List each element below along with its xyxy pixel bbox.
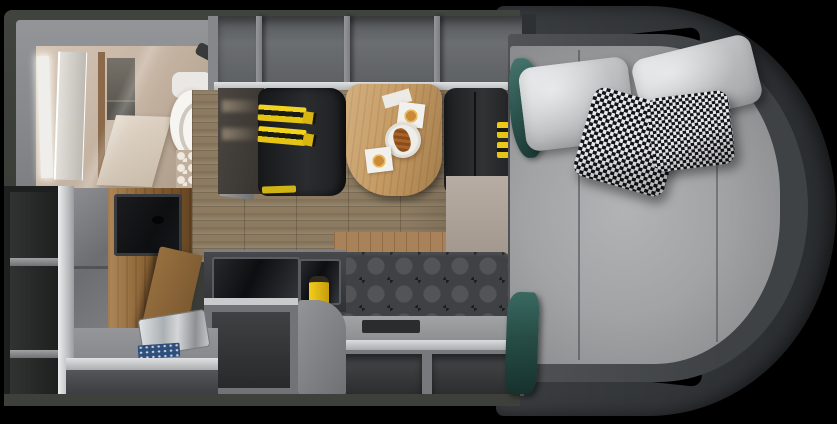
coffee-cup [370, 152, 388, 170]
counter-front-edge [66, 358, 218, 370]
mirror-panel [54, 52, 87, 181]
reflection-streak [222, 128, 262, 140]
reflection-streak [222, 100, 262, 112]
tv-screen [114, 194, 182, 256]
tv-camera-dot [152, 216, 164, 224]
bathroom-shelf-niche [107, 58, 135, 120]
shelf-divider [434, 16, 440, 84]
fridge-door-split [74, 266, 108, 269]
shelf-end-left [208, 16, 218, 92]
shelf-divider [344, 16, 350, 84]
window-panel [446, 176, 512, 258]
sofa-backrest [334, 252, 510, 318]
seatbelt-buckle [302, 111, 317, 125]
shelf-opening [10, 192, 56, 258]
van-bottom-wall [4, 394, 520, 406]
sofa-tray-inset [362, 320, 420, 333]
shelf-opening [10, 266, 56, 350]
storage-cubby [334, 354, 422, 396]
shelf-edge [10, 350, 58, 358]
shelf-divider [256, 16, 262, 84]
blue-mat [138, 343, 181, 360]
shelf-opening [10, 358, 56, 396]
seatbelt-strap [258, 104, 307, 123]
overhead-shelves [218, 16, 528, 84]
houndstooth-pillow [646, 89, 736, 172]
cabinet-opening [212, 312, 290, 388]
under-counter-space [66, 370, 218, 396]
sofa-front-edge [326, 340, 524, 350]
sofa-seat [330, 316, 522, 340]
fridge-doors [74, 188, 108, 342]
teal-towel [504, 291, 540, 394]
curved-end-cabinet [298, 300, 346, 396]
floorplan-render [0, 0, 837, 424]
shelf-edge [10, 258, 58, 266]
storage-cubby [432, 354, 516, 396]
seat-piping [262, 185, 296, 193]
seatbelt-buckle [302, 133, 317, 147]
